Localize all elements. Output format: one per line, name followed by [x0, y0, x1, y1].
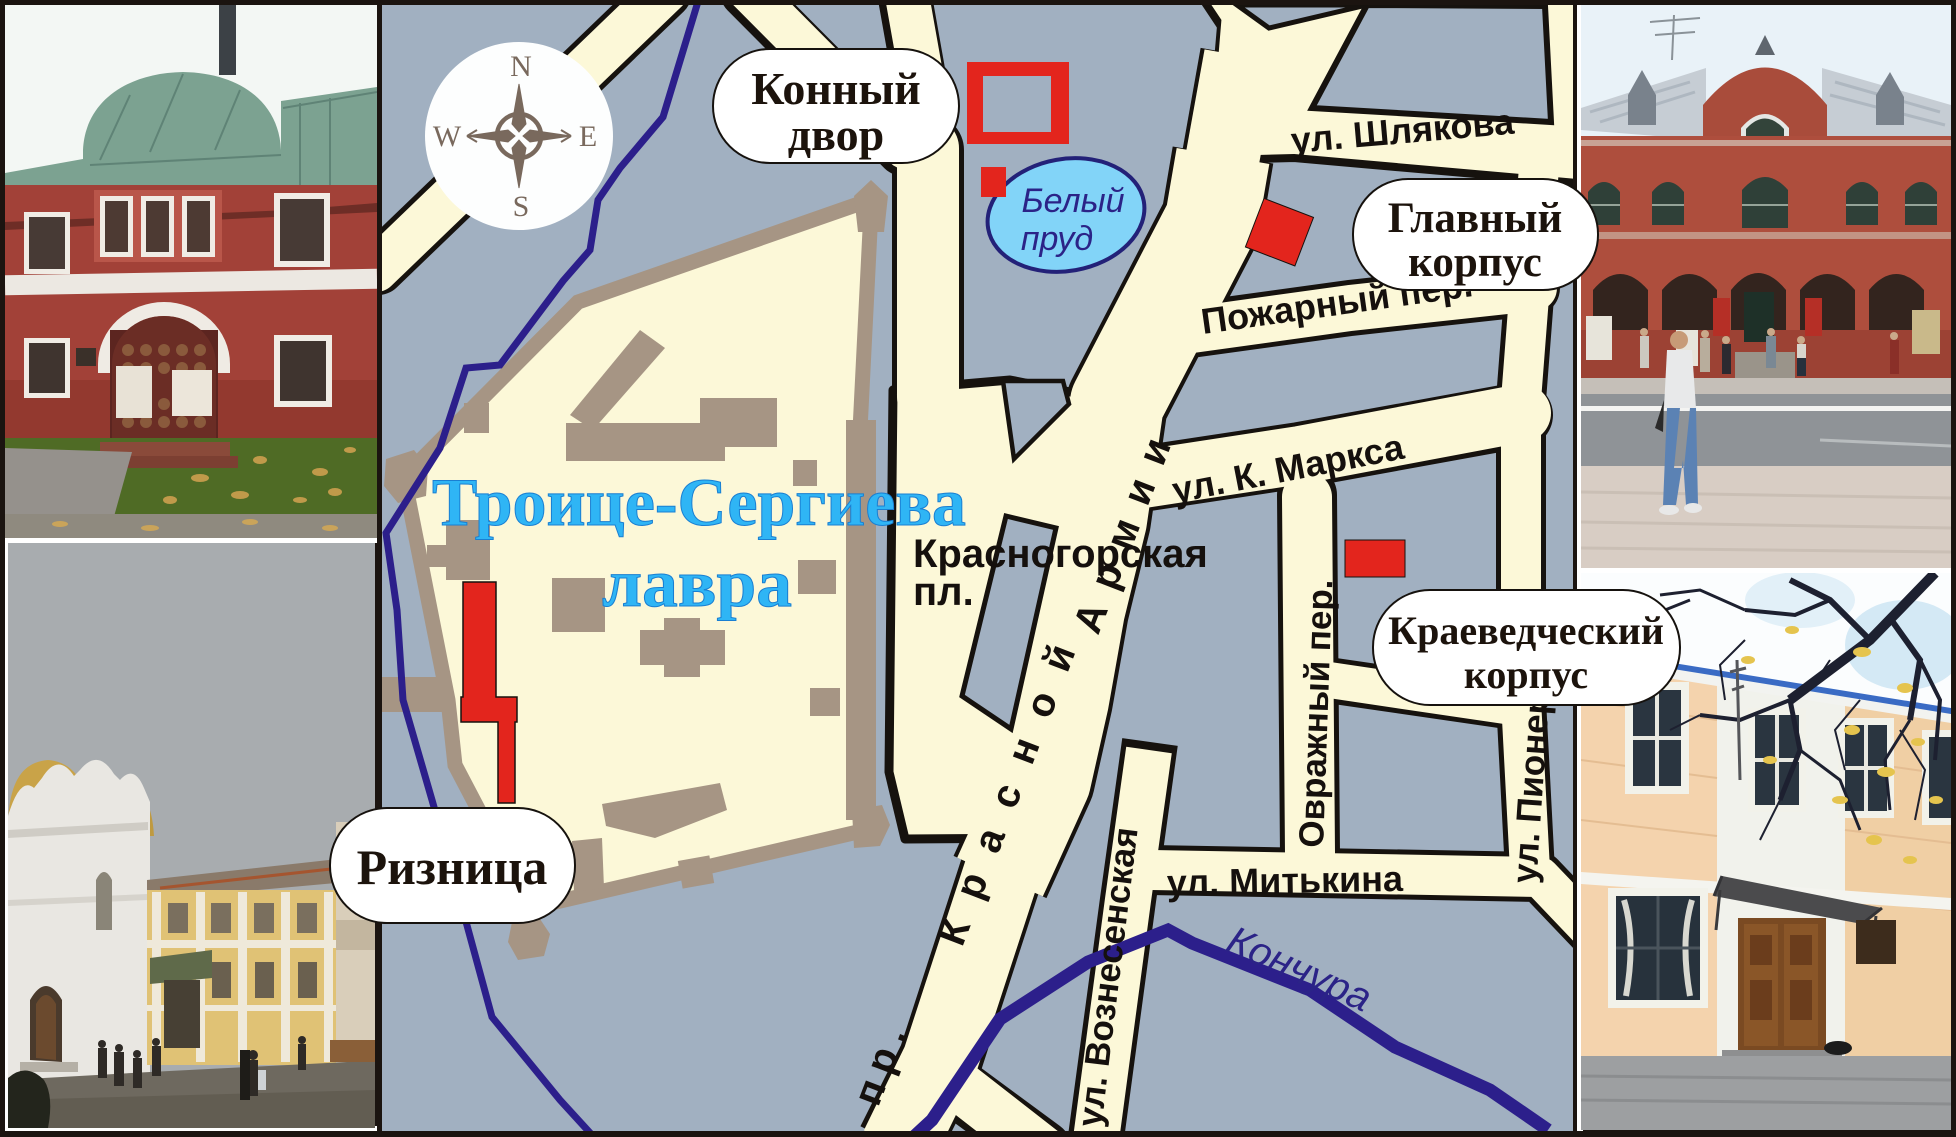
- svg-text:двор: двор: [788, 109, 884, 160]
- svg-text:N: N: [510, 50, 532, 83]
- svg-text:Белый: Белый: [1021, 182, 1124, 220]
- svg-text:корпус: корпус: [1408, 239, 1542, 286]
- svg-text:пруд: пруд: [1021, 220, 1093, 258]
- svg-text:Троице-Сергиева: Троице-Сергиева: [432, 464, 966, 540]
- svg-text:Краеведческий: Краеведческий: [1388, 608, 1664, 653]
- svg-text:корпус: корпус: [1464, 652, 1588, 697]
- svg-text:ул. Митькина: ул. Митькина: [1166, 858, 1404, 903]
- svg-text:Конный: Конный: [751, 63, 921, 114]
- svg-text:пл.: пл.: [913, 570, 974, 614]
- svg-text:Главный: Главный: [1388, 195, 1562, 242]
- svg-text:W: W: [433, 120, 462, 153]
- svg-text:S: S: [513, 190, 530, 223]
- svg-text:E: E: [579, 120, 597, 153]
- svg-text:Ризница: Ризница: [357, 839, 548, 895]
- svg-text:лавра: лавра: [602, 545, 792, 621]
